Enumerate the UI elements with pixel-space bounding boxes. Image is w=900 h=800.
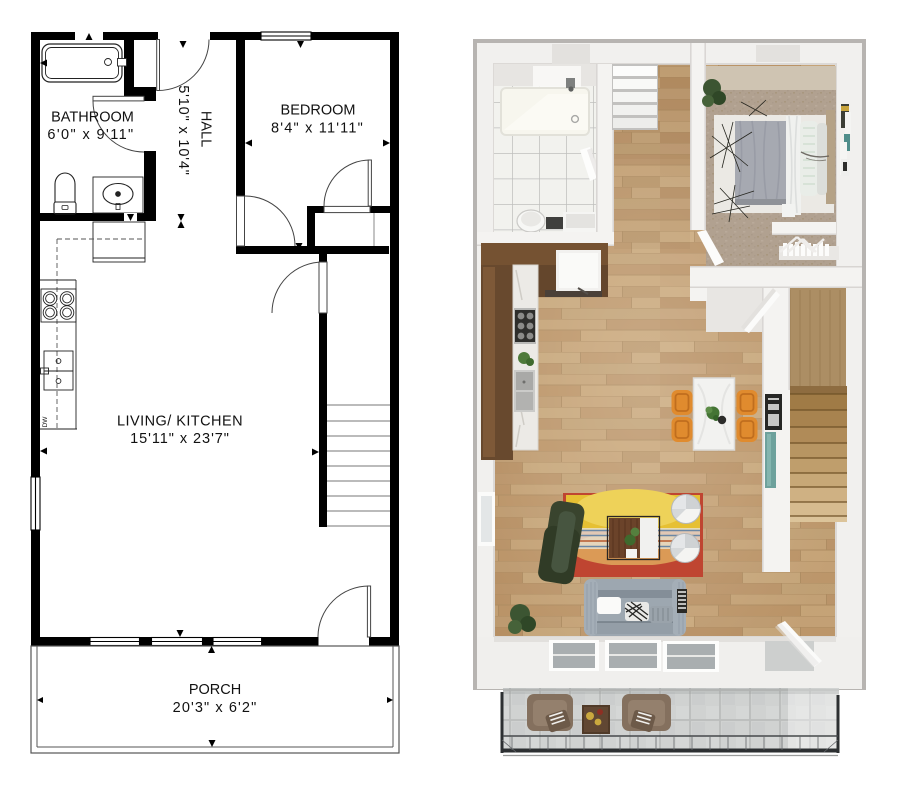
svg-text:20'3" x 6'2": 20'3" x 6'2" bbox=[173, 700, 258, 716]
svg-text:15'11" x 23'7": 15'11" x 23'7" bbox=[130, 431, 230, 447]
svg-text:LIVING/ KITCHEN: LIVING/ KITCHEN bbox=[117, 414, 243, 430]
svg-text:BEDROOM: BEDROOM bbox=[281, 103, 356, 119]
svg-text:BATHROOM: BATHROOM bbox=[51, 110, 134, 126]
svg-text:8'4" x 11'11": 8'4" x 11'11" bbox=[271, 121, 364, 137]
svg-text:PORCH: PORCH bbox=[189, 682, 241, 698]
svg-text:HALL: HALL bbox=[197, 111, 213, 147]
svg-text:DW: DW bbox=[42, 416, 49, 428]
svg-text:6'0" x 9'11": 6'0" x 9'11" bbox=[47, 127, 134, 143]
svg-text:5'10" x 10'4": 5'10" x 10'4" bbox=[175, 85, 191, 176]
